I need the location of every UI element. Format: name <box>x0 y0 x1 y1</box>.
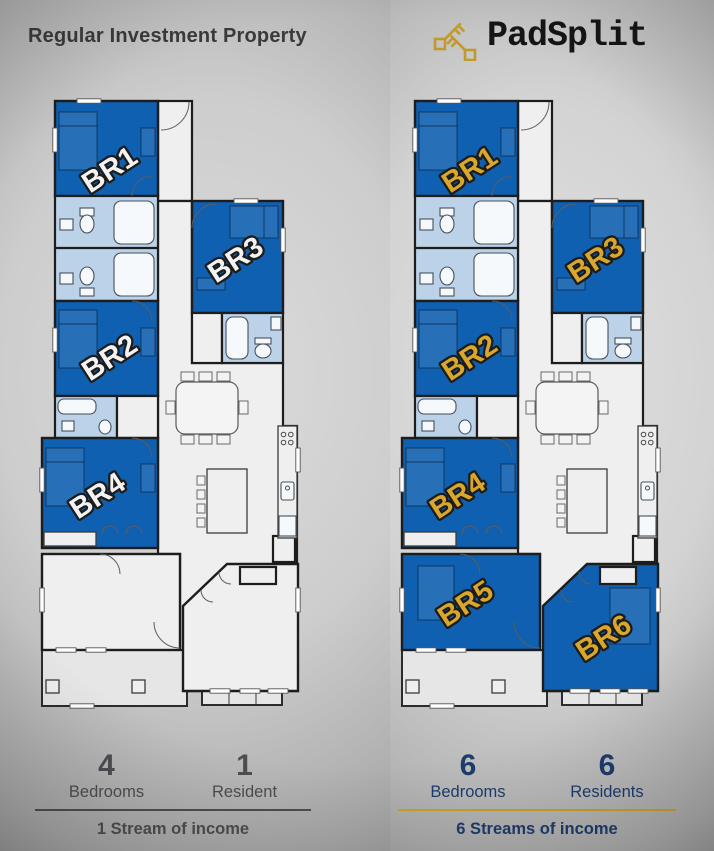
income-label-left: 1 Stream of income <box>35 820 311 839</box>
kitchen-island <box>567 469 607 533</box>
porch-post <box>132 680 145 693</box>
closet <box>477 396 518 438</box>
bedrooms-label: Bedrooms <box>69 783 144 802</box>
porch-post <box>492 680 505 693</box>
dining-table <box>536 382 598 434</box>
page-title: Regular Investment Property <box>28 25 307 48</box>
closet <box>117 396 158 438</box>
bedrooms-count: 6 <box>430 750 505 781</box>
brand-name: PadSplit <box>487 16 647 56</box>
closet <box>192 313 222 363</box>
padsplit-logo: PadSplit <box>430 11 647 61</box>
bedrooms-label: Bedrooms <box>430 783 505 802</box>
stats-divider-left <box>35 809 311 811</box>
room-br5 <box>42 554 180 650</box>
stats-divider-right <box>398 809 676 811</box>
closet <box>552 313 582 363</box>
keys-icon <box>430 11 478 61</box>
console <box>240 567 276 584</box>
residents-count: 6 <box>570 750 643 781</box>
dining-table <box>176 382 238 434</box>
porch-post <box>406 680 419 693</box>
entry-hall <box>158 101 192 201</box>
regular-floorplan: BR1 BR2 BR3 BR4 <box>36 96 312 714</box>
back-porch <box>42 650 187 706</box>
kitchen-island <box>207 469 247 533</box>
stats-right: 6 Bedrooms 6 Residents 6 Streams of inco… <box>398 750 676 839</box>
stat-residents-left: 1 Resident <box>212 750 277 802</box>
stats-left: 4 Bedrooms 1 Resident 1 Stream of income <box>35 750 311 839</box>
entry-hall <box>518 101 552 201</box>
residents-count: 1 <box>212 750 277 781</box>
closet <box>273 536 295 562</box>
stat-residents-right: 6 Residents <box>570 750 643 802</box>
residents-label: Residents <box>570 783 643 802</box>
bedrooms-count: 4 <box>69 750 144 781</box>
back-porch <box>402 650 547 706</box>
closet <box>44 532 96 546</box>
income-label-right: 6 Streams of income <box>398 820 676 839</box>
porch-post <box>46 680 59 693</box>
console <box>600 567 636 584</box>
stat-bedrooms-left: 4 Bedrooms <box>69 750 144 802</box>
closet <box>404 532 456 546</box>
residents-label: Resident <box>212 783 277 802</box>
stat-bedrooms-right: 6 Bedrooms <box>430 750 505 802</box>
padsplit-floorplan: BR1 BR2 BR3 BR4 BR5 BR6 <box>396 96 672 714</box>
closet <box>633 536 655 562</box>
